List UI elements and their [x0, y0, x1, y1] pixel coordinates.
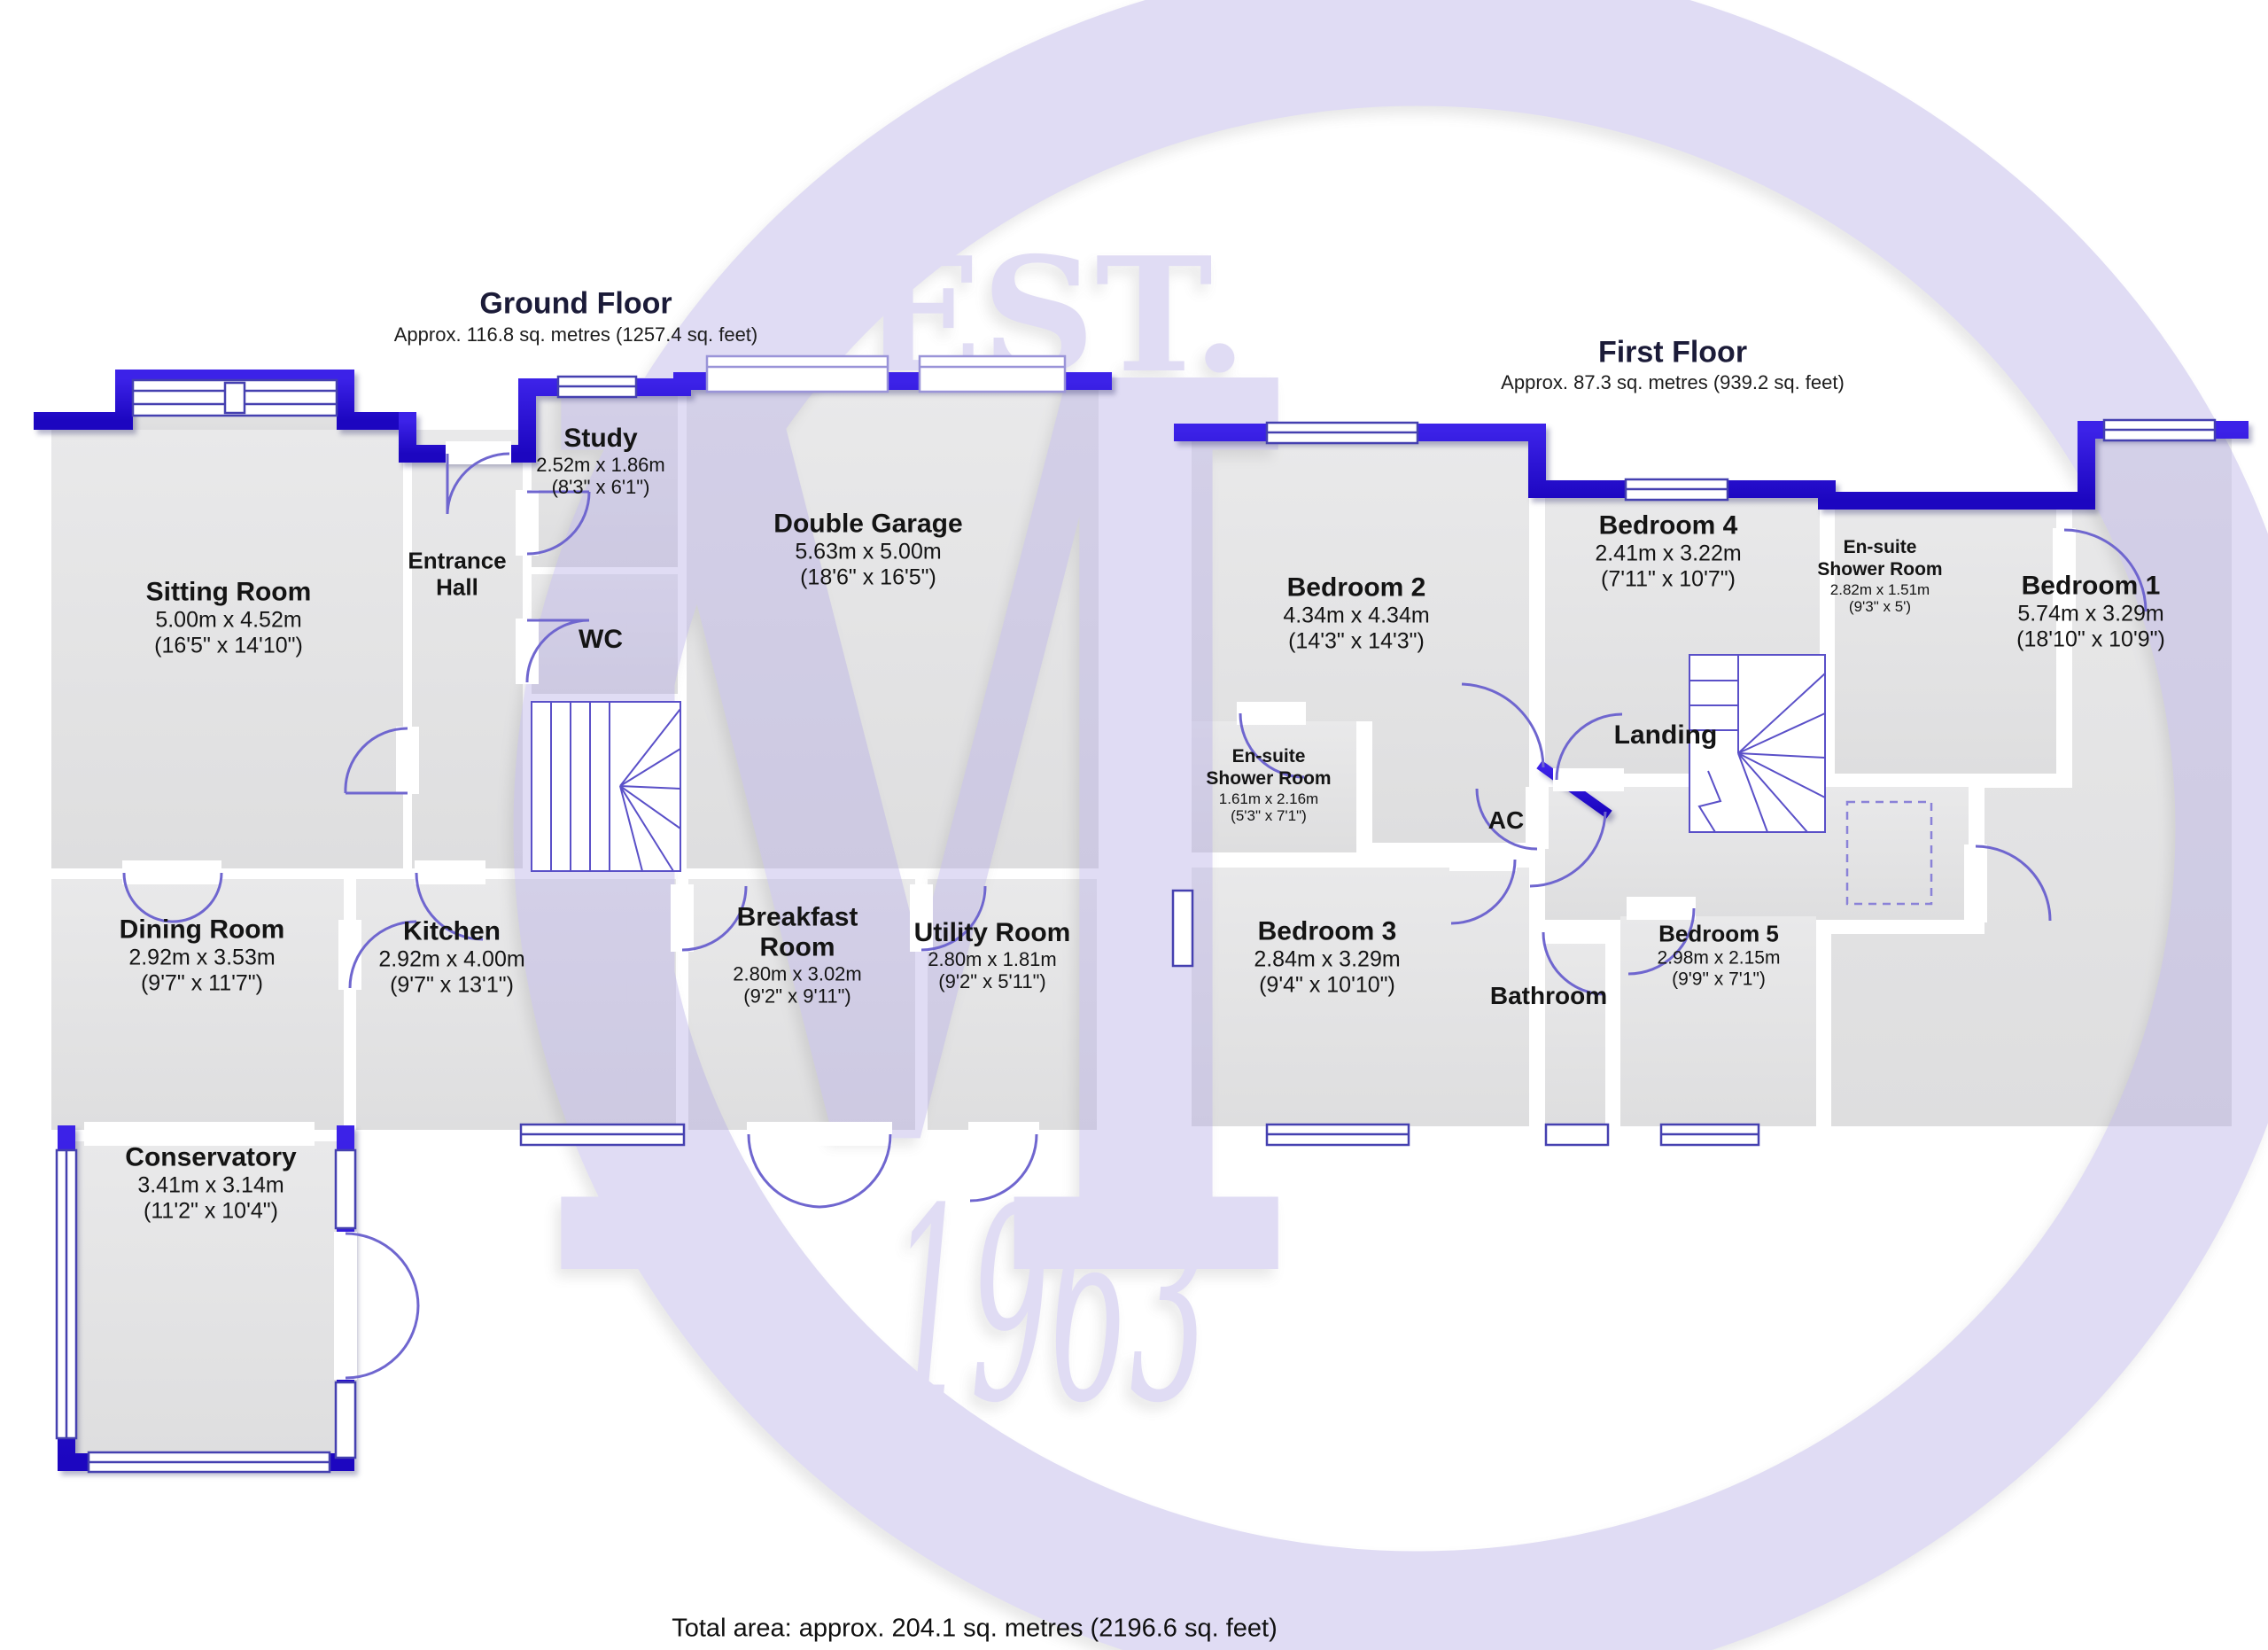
- bay-window: [133, 380, 337, 416]
- room-dims-ft: (5'3" x 7'1"): [1202, 807, 1335, 824]
- room-name: Utility Room: [906, 918, 1079, 948]
- room-name: Bathroom: [1490, 982, 1607, 1010]
- room-dims-m: 2.80m x 3.02m: [703, 963, 893, 985]
- room-name: En-suite Shower Room: [1202, 746, 1335, 790]
- room-label-wc: WC: [579, 625, 623, 655]
- room-name: Study: [503, 424, 698, 454]
- room-dims-ft: (9'2" x 5'11"): [906, 970, 1079, 992]
- room-label-bedroom4: Bedroom 4 2.41m x 3.22m (7'11" x 10'7"): [1549, 510, 1788, 591]
- room-label-landing: Landing: [1614, 720, 1718, 751]
- room-name: Dining Room: [107, 915, 298, 945]
- room-label-conservatory: Conservatory 3.41m x 3.14m (11'2" x 10'4…: [65, 1142, 357, 1223]
- room-dims-m: 5.00m x 4.52m: [127, 608, 330, 634]
- room-name: Breakfast Room: [703, 903, 893, 963]
- room-name: AC: [1488, 806, 1524, 835]
- first-floor-subtitle: Approx. 87.3 sq. metres (939.2 sq. feet): [1501, 371, 1845, 394]
- room-name: Conservatory: [65, 1142, 357, 1172]
- room-label-ensuite-1: En-suite Shower Room 2.82m x 1.51m (9'3"…: [1809, 537, 1951, 615]
- floorplan-graphic: EST. M 1963: [0, 0, 2268, 1650]
- room-dims-m: 5.63m x 5.00m: [757, 540, 979, 565]
- room-label-study: Study 2.52m x 1.86m (8'3" x 6'1"): [503, 424, 698, 498]
- room-label-bedroom1: Bedroom 1 5.74m x 3.29m (18'10" x 10'9"): [1953, 571, 2228, 651]
- total-area-text: Total area: approx. 204.1 sq. metres (21…: [672, 1615, 1278, 1644]
- room-dims-ft: (11'2" x 10'4"): [65, 1198, 357, 1224]
- room-label-ensuite-2: En-suite Shower Room 1.61m x 2.16m (5'3"…: [1202, 746, 1335, 824]
- room-dims-ft: (9'9" x 7'1"): [1608, 969, 1829, 990]
- garage-doors: [707, 356, 1065, 392]
- room-name: Bedroom 4: [1549, 510, 1788, 541]
- first-floor-title: First Floor: [1598, 336, 1747, 370]
- room-dims-m: 2.52m x 1.86m: [503, 454, 698, 476]
- room-dims-ft: (18'6" x 16'5"): [757, 564, 979, 590]
- room-label-bedroom3: Bedroom 3 2.84m x 3.29m (9'4" x 10'10"): [1208, 916, 1447, 997]
- room-dims-ft: (9'7" x 13'1"): [341, 972, 563, 998]
- room-label-bedroom2: Bedroom 2 4.34m x 4.34m (14'3" x 14'3"): [1237, 572, 1476, 653]
- room-dims-ft: (14'3" x 14'3"): [1237, 628, 1476, 654]
- room-dims-m: 2.82m x 1.51m: [1809, 580, 1951, 597]
- room-dims-m: 2.92m x 3.53m: [107, 946, 298, 971]
- room-label-entrance-hall: Entrance Hall: [402, 548, 513, 600]
- room-dims-m: 2.84m x 3.29m: [1208, 947, 1447, 973]
- room-dims-m: 4.34m x 4.34m: [1237, 603, 1476, 629]
- ground-floor-title: Ground Floor: [479, 287, 672, 322]
- room-name: Bedroom 3: [1208, 916, 1447, 946]
- room-dims-m: 2.41m x 3.22m: [1549, 541, 1788, 567]
- room-name: WC: [579, 625, 623, 655]
- room-name: Sitting Room: [127, 577, 330, 607]
- room-name: Double Garage: [757, 509, 979, 539]
- room-label-ac: AC: [1488, 806, 1524, 835]
- room-dims-m: 2.98m x 2.15m: [1608, 947, 1829, 969]
- room-name: Entrance Hall: [402, 548, 513, 600]
- room-dims-ft: (8'3" x 6'1"): [503, 476, 698, 498]
- floorplan-page: EST. M 1963: [0, 0, 2268, 1650]
- room-dims-ft: (7'11" x 10'7"): [1549, 566, 1788, 592]
- room-label-breakfast: Breakfast Room 2.80m x 3.02m (9'2" x 9'1…: [703, 903, 893, 1008]
- room-label-bathroom: Bathroom: [1490, 982, 1607, 1010]
- room-dims-ft: (9'4" x 10'10"): [1208, 972, 1447, 998]
- ground-stairs: [532, 702, 680, 871]
- room-label-kitchen: Kitchen 2.92m x 4.00m (9'7" x 13'1"): [341, 916, 563, 997]
- room-name: Bedroom 2: [1237, 572, 1476, 603]
- room-dims-m: 2.80m x 1.81m: [906, 948, 1079, 970]
- room-name: Kitchen: [341, 916, 563, 946]
- room-dims-m: 5.74m x 3.29m: [1953, 602, 2228, 627]
- room-dims-ft: (9'3" x 5'): [1809, 598, 1951, 615]
- room-dims-m: 2.92m x 4.00m: [341, 947, 563, 973]
- room-name: Bedroom 5: [1608, 921, 1829, 947]
- room-label-utility: Utility Room 2.80m x 1.81m (9'2" x 5'11"…: [906, 918, 1079, 992]
- room-name: Bedroom 1: [1953, 571, 2228, 601]
- room-dims-ft: (9'2" x 9'11"): [703, 985, 893, 1008]
- room-label-bedroom5: Bedroom 5 2.98m x 2.15m (9'9" x 7'1"): [1608, 921, 1829, 990]
- room-dims-ft: (16'5" x 14'10"): [127, 633, 330, 658]
- watermark-year: 1963: [890, 1152, 1209, 1461]
- room-dims-m: 3.41m x 3.14m: [65, 1173, 357, 1199]
- room-dims-ft: (9'7" x 11'7"): [107, 970, 298, 996]
- room-label-dining: Dining Room 2.92m x 3.53m (9'7" x 11'7"): [107, 915, 298, 995]
- room-dims-m: 1.61m x 2.16m: [1202, 790, 1335, 806]
- room-name: Landing: [1614, 720, 1718, 751]
- ground-floor-subtitle: Approx. 116.8 sq. metres (1257.4 sq. fee…: [394, 323, 757, 346]
- room-name: En-suite Shower Room: [1809, 537, 1951, 581]
- room-label-sitting: Sitting Room 5.00m x 4.52m (16'5" x 14'1…: [127, 577, 330, 658]
- room-label-garage: Double Garage 5.63m x 5.00m (18'6" x 16'…: [757, 509, 979, 589]
- room-dims-ft: (18'10" x 10'9"): [1953, 627, 2228, 652]
